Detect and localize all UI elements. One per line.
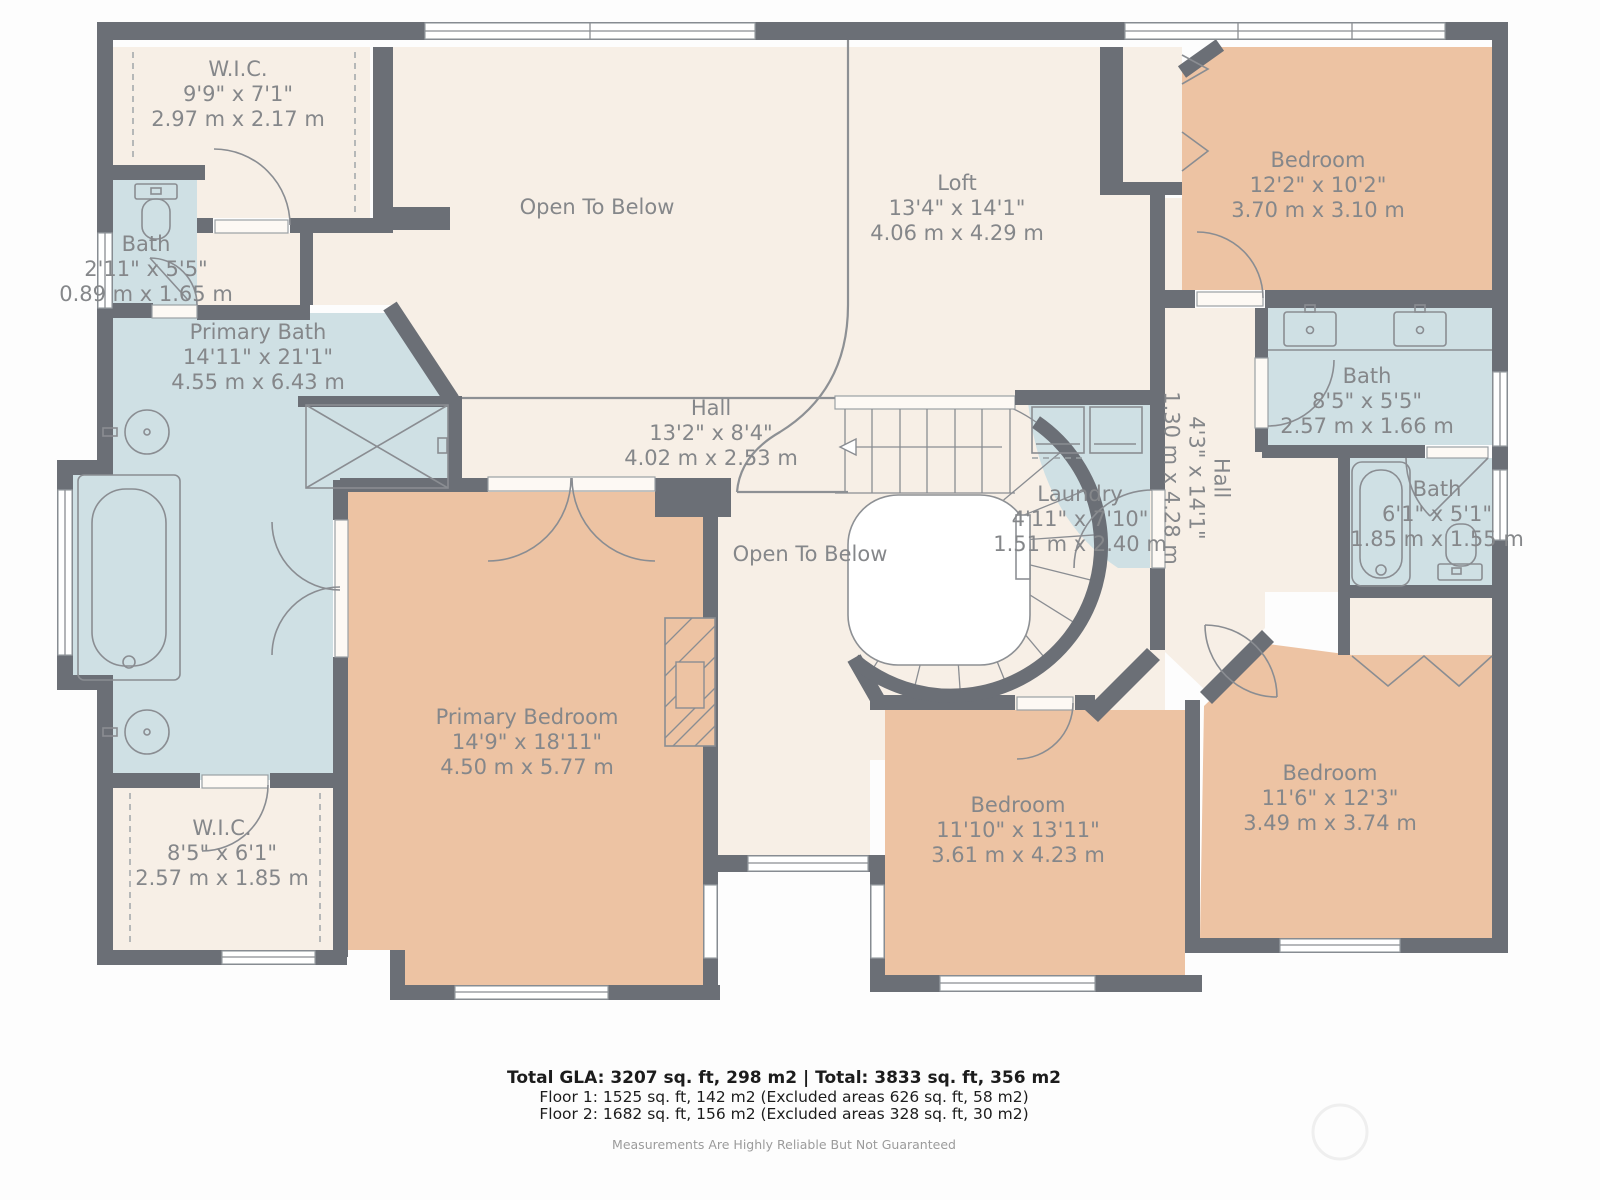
- disclaimer-text: Measurements Are Highly Reliable But Not…: [612, 1137, 956, 1152]
- window-bath-top-right: [1493, 372, 1507, 446]
- window-primary-bedroom: [455, 986, 608, 999]
- window-top-right: [1125, 23, 1445, 39]
- floor-plan-drawing: [0, 0, 1600, 1200]
- window-top-left: [425, 23, 755, 39]
- watermark-logo: [1313, 1105, 1367, 1159]
- window-bedroom-mid: [940, 976, 1095, 991]
- window-bath-right: [1493, 470, 1507, 540]
- window-bath-left: [98, 233, 112, 308]
- floor1-line: Floor 1: 1525 sq. ft, 142 m2 (Excluded a…: [539, 1088, 1028, 1106]
- total-gla-line: Total GLA: 3207 sq. ft, 298 m2 | Total: …: [507, 1068, 1061, 1088]
- window-tub-alcove: [58, 490, 72, 655]
- window-wic-bottom: [222, 951, 315, 964]
- stair-newel: [1016, 515, 1030, 579]
- window-bedroom-bottom-right: [1280, 939, 1400, 952]
- floor2-line: Floor 2: 1682 sq. ft, 156 m2 (Excluded a…: [539, 1105, 1028, 1123]
- stair-top-landing: [835, 396, 1015, 409]
- fireplace-icon: [665, 618, 715, 746]
- floor-plan-page: W.I.C. 9'9" x 7'1" 2.97 m x 2.17 m Bath …: [0, 0, 1600, 1200]
- stair-inner-void: [848, 495, 1030, 665]
